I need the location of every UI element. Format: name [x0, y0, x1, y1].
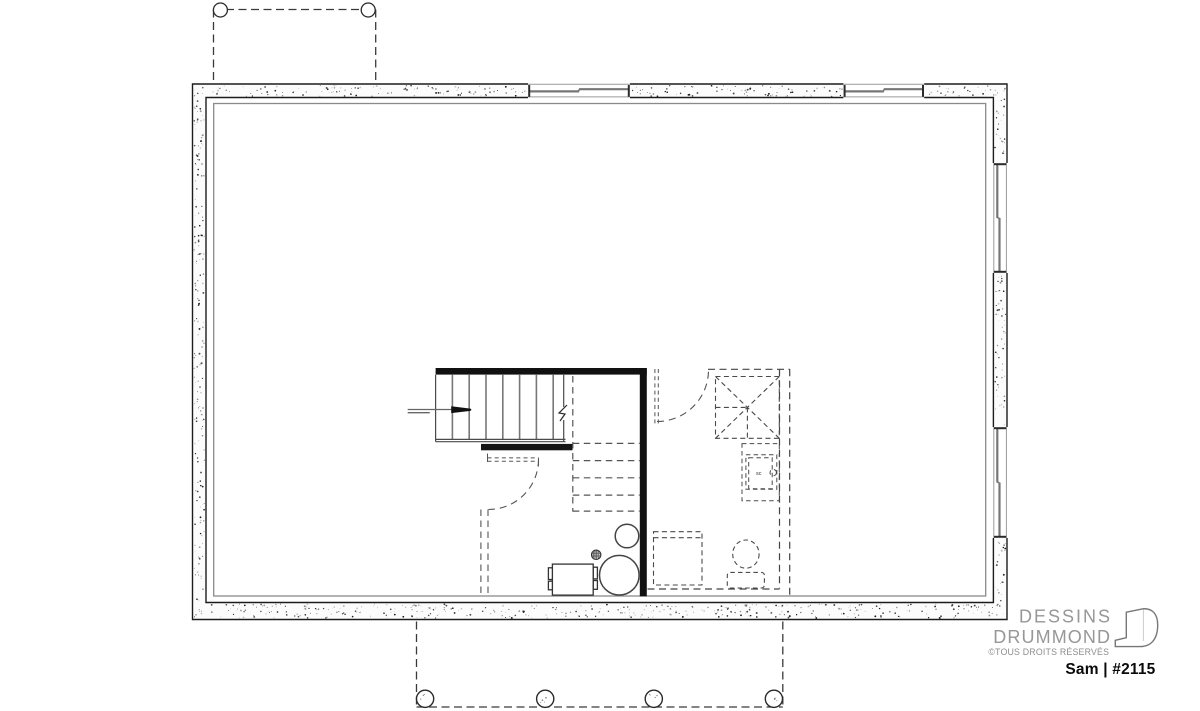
svg-text:sc: sc: [756, 471, 762, 477]
svg-text:Sam | #2115: Sam | #2115: [1065, 661, 1155, 678]
svg-text:©TOUS DROITS RÉSERVÉS: ©TOUS DROITS RÉSERVÉS: [988, 647, 1109, 657]
svg-text:DESSINS: DESSINS: [1019, 607, 1112, 627]
svg-text:DRUMMOND: DRUMMOND: [993, 627, 1111, 647]
